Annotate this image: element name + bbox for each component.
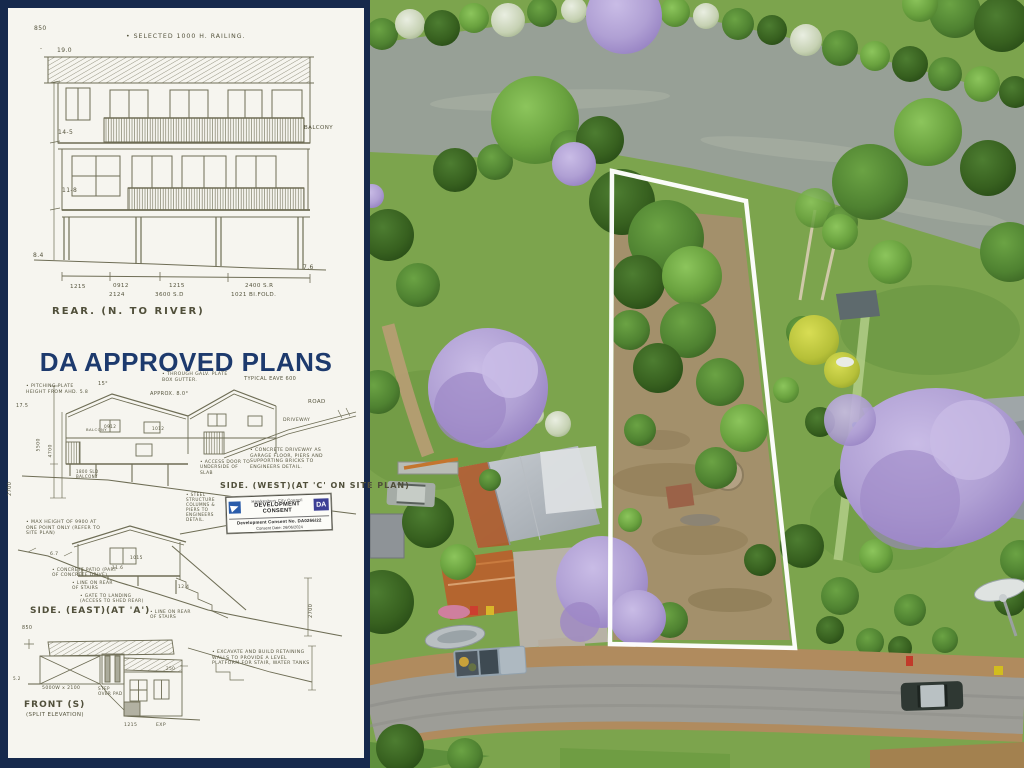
west-dim-5500: 5500 [37, 438, 43, 451]
rear-dim-1215b: 1215 [169, 283, 185, 290]
west-gutter-note: • THROUGH GALV. PLATE BOX GUTTER. [162, 372, 228, 383]
front-garage-dim: 5000W x 2100 [42, 686, 80, 692]
rear-dim-1215a: 1215 [70, 284, 86, 291]
stamp-title-line2: CONSENT [243, 508, 312, 516]
front-caption: FRONT (S) [24, 700, 85, 711]
west-dim-175: 17.5 [16, 404, 28, 410]
east-stair-note2: • LINE ON REAR OF STAIRS [150, 610, 198, 621]
east-stair-note: • LINE ON REAR OF STAIRS [72, 581, 120, 592]
rear-caption: REAR. (N. TO RIVER) [52, 306, 205, 318]
front-pad-note: STEP OVER PAD [98, 686, 124, 696]
east-window-1015: 1015 [130, 556, 143, 561]
west-sld-label: 1800 SLD BALCONY [76, 470, 106, 480]
west-eave-note: TYPICAL EAVE 600 [244, 376, 302, 382]
hawkesbury-council-logo-icon [229, 502, 241, 514]
rear-dim-0912: 0912 [113, 283, 129, 290]
rear-dim-low: 11-8 [62, 187, 77, 194]
west-pitch-note: • PITCHING PLATE HEIGHT FROM AHD. 5.8 [26, 384, 92, 395]
listing-composite-image: 850 • SELECTED 1000 H. RAILING. 19.0 BAL… [0, 0, 1024, 768]
rear-dim-2400sr: 2400 S.R [245, 283, 273, 290]
rear-datum: 850 [34, 25, 47, 32]
west-approx: APPROX. 8.0° [150, 391, 188, 397]
aerial-photo [370, 0, 1024, 768]
aerial-photo-graphic [370, 0, 1024, 768]
parked-car [901, 681, 964, 711]
plans-panel: 850 • SELECTED 1000 H. RAILING. 19.0 BAL… [0, 0, 370, 768]
rear-dim-ground-right: 7.6 [303, 264, 314, 271]
west-window-0912: 0912 [104, 424, 116, 429]
rear-balcony-label: BALCONY [304, 125, 333, 132]
west-caption: SIDE. (WEST)(AT 'C' ON SITE PLAN) [220, 481, 410, 491]
rear-dim-3600sd: 3600 S.D [155, 292, 184, 299]
yellow-bin-house [486, 606, 494, 615]
front-dim-52: 5.2 [13, 676, 21, 681]
west-road-label: ROAD [308, 399, 326, 406]
stamp-da-badge: DA [314, 499, 329, 512]
yellow-marker [994, 666, 1003, 675]
east-dim-2700: 2700 [308, 604, 314, 618]
west-driveway-note: • CONCRETE DRIVEWAY AS GARAGE FLOOR, PIE… [250, 448, 336, 470]
flower-bed [438, 605, 470, 619]
storage-container [370, 514, 404, 558]
east-height-note: • MAX HEIGHT OF 9900 AT ONE POINT ONLY (… [26, 520, 104, 537]
rear-railing-note: • SELECTED 1000 H. RAILING. [126, 33, 246, 40]
red-wheelie-bin [906, 656, 913, 666]
front-datum: 850 [22, 626, 32, 632]
west-dim-4700: 4700 [49, 444, 55, 457]
front-window-1215: 1215 [124, 723, 137, 729]
east-dim-67: 6.7 [50, 552, 59, 558]
west-structure-note: • STEEL STRUCTURE COLUMNS & PIERS TO ENG… [186, 492, 228, 522]
rear-elevation-drawing [14, 48, 350, 304]
front-dim-250: 250 [166, 666, 175, 671]
front-window-exp: EXP [156, 723, 166, 729]
red-bin-house [470, 606, 478, 615]
rear-dim-bifold: 1021 BI.FOLD. [231, 292, 276, 299]
west-driveway-label: DRIVEWAY [283, 418, 310, 424]
development-consent-stamp: Hawkesbury City Council DEVELOPMENT CONS… [225, 493, 332, 534]
front-retaining-note: • EXCAVATE AND BUILD RETAINING WALLS TO … [212, 650, 316, 667]
west-roof-slope: 15° [98, 381, 108, 387]
west-dim-2700: 2700 [7, 482, 13, 496]
east-gate-note: • GATE TO LANDING (ACCESS TO SHED REAR) [80, 594, 144, 605]
west-window-1012: 1012 [152, 426, 164, 431]
west-door-note: • ACCESS DOOR TO UNDERSIDE OF SLAB [200, 460, 252, 476]
right-small-shed-roof [836, 290, 880, 320]
east-caption: SIDE. (EAST)(AT 'A') [30, 606, 150, 617]
rear-dim-mid: 14-5 [58, 129, 73, 136]
rear-dim-2124: 2124 [109, 292, 125, 299]
rear-dim-ground-left: 8.4 [33, 252, 44, 259]
front-caption-sub: (SPLIT ELEVATION) [26, 712, 84, 719]
rear-width-dim: 19.0 [57, 47, 72, 54]
east-dim-116: 11.6 [112, 566, 123, 571]
brick-structure [666, 483, 695, 508]
ute-pickup [453, 646, 527, 679]
east-dim-124: 12.4 [178, 585, 189, 590]
